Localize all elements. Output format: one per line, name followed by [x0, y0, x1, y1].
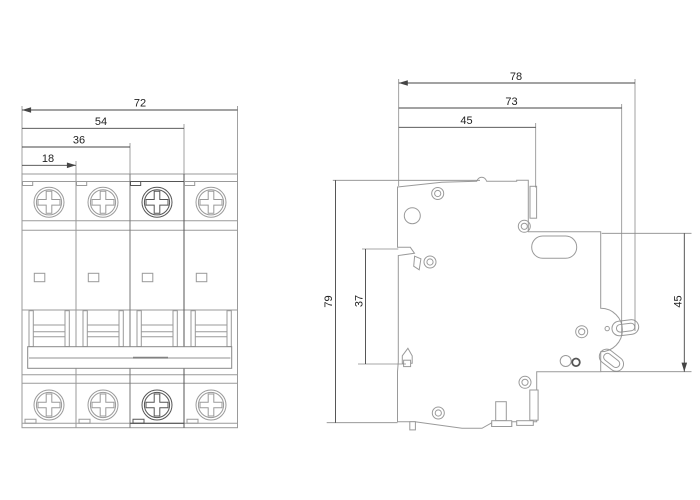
- dim-label-total-depth: 78: [510, 71, 522, 83]
- terminal-screw: [34, 390, 64, 420]
- mounting-tab-bottom: [187, 419, 198, 423]
- side-extension-lines: [327, 79, 692, 423]
- bottom-plunger-flange: [492, 421, 512, 427]
- toggle-frame: [191, 311, 231, 347]
- terminal-screw: [142, 187, 172, 217]
- detail-circle-dark: [572, 359, 580, 367]
- mounting-tab-top: [185, 182, 195, 186]
- front-view: 72 54 36 18: [22, 98, 238, 428]
- dim-label-two-pole-width: 36: [73, 135, 85, 147]
- lever-pivot-dot: [605, 326, 609, 330]
- front-face-rib: [530, 186, 537, 218]
- din-clip-tab: [414, 256, 421, 270]
- mounting-tab-bottom: [133, 419, 144, 423]
- rivet: [519, 376, 531, 388]
- mounting-tab-top: [23, 182, 33, 186]
- toggle-frame: [29, 311, 69, 347]
- dim-label-right-section-height: 45: [672, 295, 684, 307]
- dim-label-depth-to-lever: 73: [505, 96, 517, 108]
- housing-hole: [404, 208, 420, 224]
- terminal-screw: [34, 187, 64, 217]
- terminal-screw: [88, 390, 118, 420]
- dim-label-three-pole-width: 54: [95, 116, 107, 128]
- terminal-screw: [88, 187, 118, 217]
- label-window: [532, 236, 577, 258]
- terminal-screw: [142, 390, 172, 420]
- terminal-screw: [196, 390, 226, 420]
- mounting-tab-bottom: [79, 419, 90, 423]
- terminal-screw: [196, 187, 226, 217]
- bottom-plunger-pin: [496, 402, 507, 421]
- toggle-frame: [83, 311, 123, 347]
- front-extension-lines: [22, 106, 238, 174]
- rivet: [432, 407, 444, 419]
- mounting-tab-bottom: [25, 419, 36, 423]
- pole-window: [142, 273, 153, 281]
- mounting-tab-top: [131, 182, 141, 186]
- pole-window: [196, 273, 207, 281]
- dimensional-drawing: 72 54 36 18: [0, 0, 700, 500]
- din-release-tab: [410, 422, 416, 430]
- rivet: [576, 326, 588, 338]
- mounting-tab-top: [77, 182, 87, 186]
- bottom-platform: [517, 421, 534, 426]
- drawing-page: 72 54 36 18: [0, 0, 700, 500]
- rivet: [432, 188, 444, 200]
- dim-label-total-height: 79: [323, 295, 335, 307]
- din-clip-pin: [404, 360, 411, 366]
- toggle-frame: [137, 311, 177, 347]
- terminal-pin: [530, 390, 538, 420]
- dim-label-one-pole-width: 18: [42, 153, 54, 165]
- side-view: 78 73 45 79 37 45: [323, 71, 692, 430]
- dim-label-overall-width: 72: [134, 98, 146, 110]
- dim-label-din-section-height: 37: [354, 295, 366, 307]
- pole-window: [88, 273, 99, 281]
- detail-circle: [560, 356, 571, 367]
- side-body-outline: [398, 177, 623, 428]
- rivet: [424, 256, 436, 268]
- dim-label-front-depth: 45: [460, 115, 472, 127]
- pole-window: [34, 273, 45, 281]
